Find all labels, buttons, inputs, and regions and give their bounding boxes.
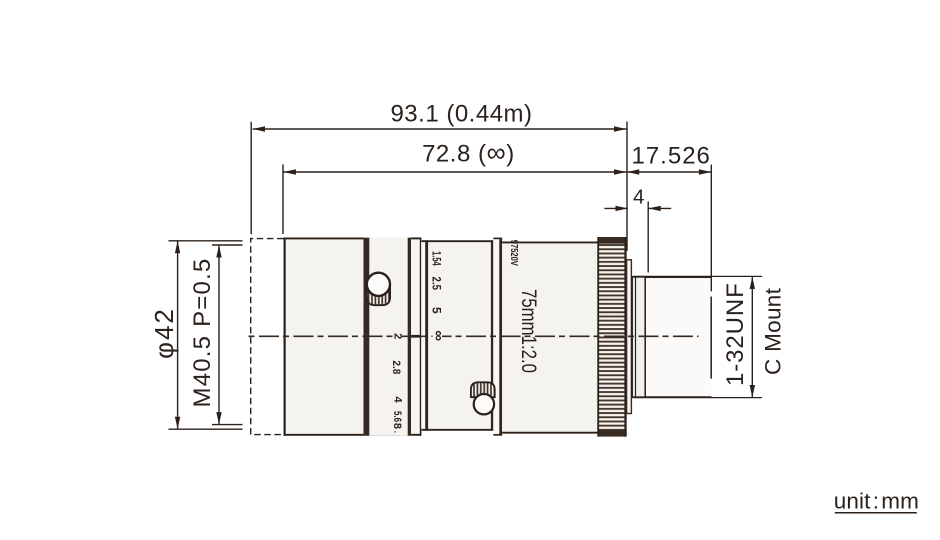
svg-text:75mm1:2.0: 75mm1:2.0 <box>517 289 540 373</box>
svg-text:8: 8 <box>391 423 403 429</box>
svg-text:72.8 (∞): 72.8 (∞) <box>422 138 515 168</box>
svg-text:C Mount: C Mount <box>761 287 786 375</box>
svg-text:93.1 (0.44m): 93.1 (0.44m) <box>390 101 532 128</box>
svg-text:4: 4 <box>633 185 644 208</box>
svg-text:2.8: 2.8 <box>390 360 402 374</box>
svg-text:φ42: φ42 <box>149 307 179 359</box>
svg-text:2.5: 2.5 <box>429 277 443 291</box>
svg-text:5.6: 5.6 <box>391 411 403 422</box>
svg-text:4: 4 <box>392 396 404 403</box>
svg-text:2: 2 <box>391 333 403 339</box>
svg-text:1-32UNF: 1-32UNF <box>722 282 749 386</box>
svg-text:∞: ∞ <box>430 330 447 341</box>
svg-text:1.54: 1.54 <box>429 251 443 266</box>
svg-text:.: . <box>393 431 402 433</box>
svg-text:unit:mm: unit:mm <box>834 489 919 514</box>
svg-text:17.526: 17.526 <box>631 142 710 169</box>
svg-text:5: 5 <box>429 307 443 314</box>
svg-text:M40.5 P=0.5: M40.5 P=0.5 <box>189 258 216 408</box>
svg-text:97520V: 97520V <box>508 240 520 266</box>
